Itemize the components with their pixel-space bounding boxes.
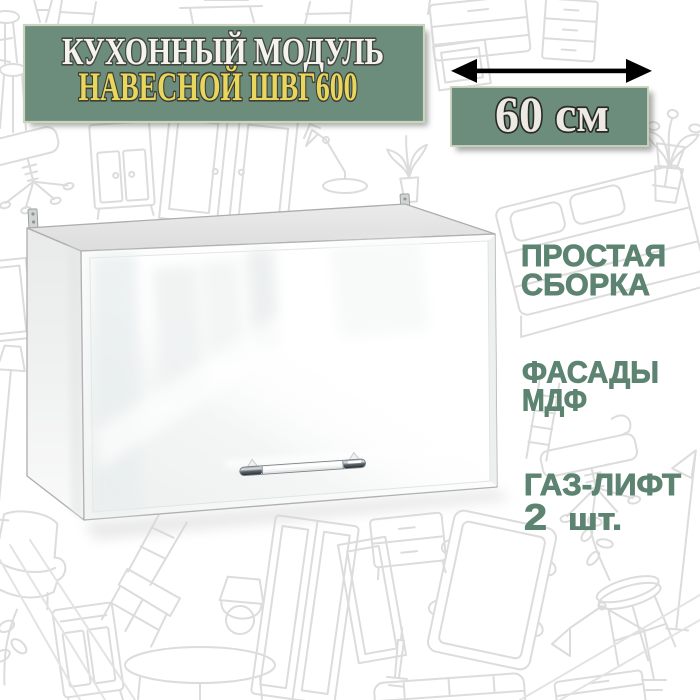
svg-text:МДФ: МДФ	[522, 383, 587, 417]
svg-text:СБОРКА: СБОРКА	[521, 268, 650, 302]
svg-text:НАВЕСНОЙ ШВГ600: НАВЕСНОЙ ШВГ600	[79, 64, 358, 109]
svg-text:60 см: 60 см	[495, 86, 609, 142]
svg-text:ГАЗ-ЛИФТ: ГАЗ-ЛИФТ	[524, 468, 681, 502]
svg-text:2: 2	[524, 497, 547, 538]
svg-text:шт.: шт.	[568, 503, 622, 537]
